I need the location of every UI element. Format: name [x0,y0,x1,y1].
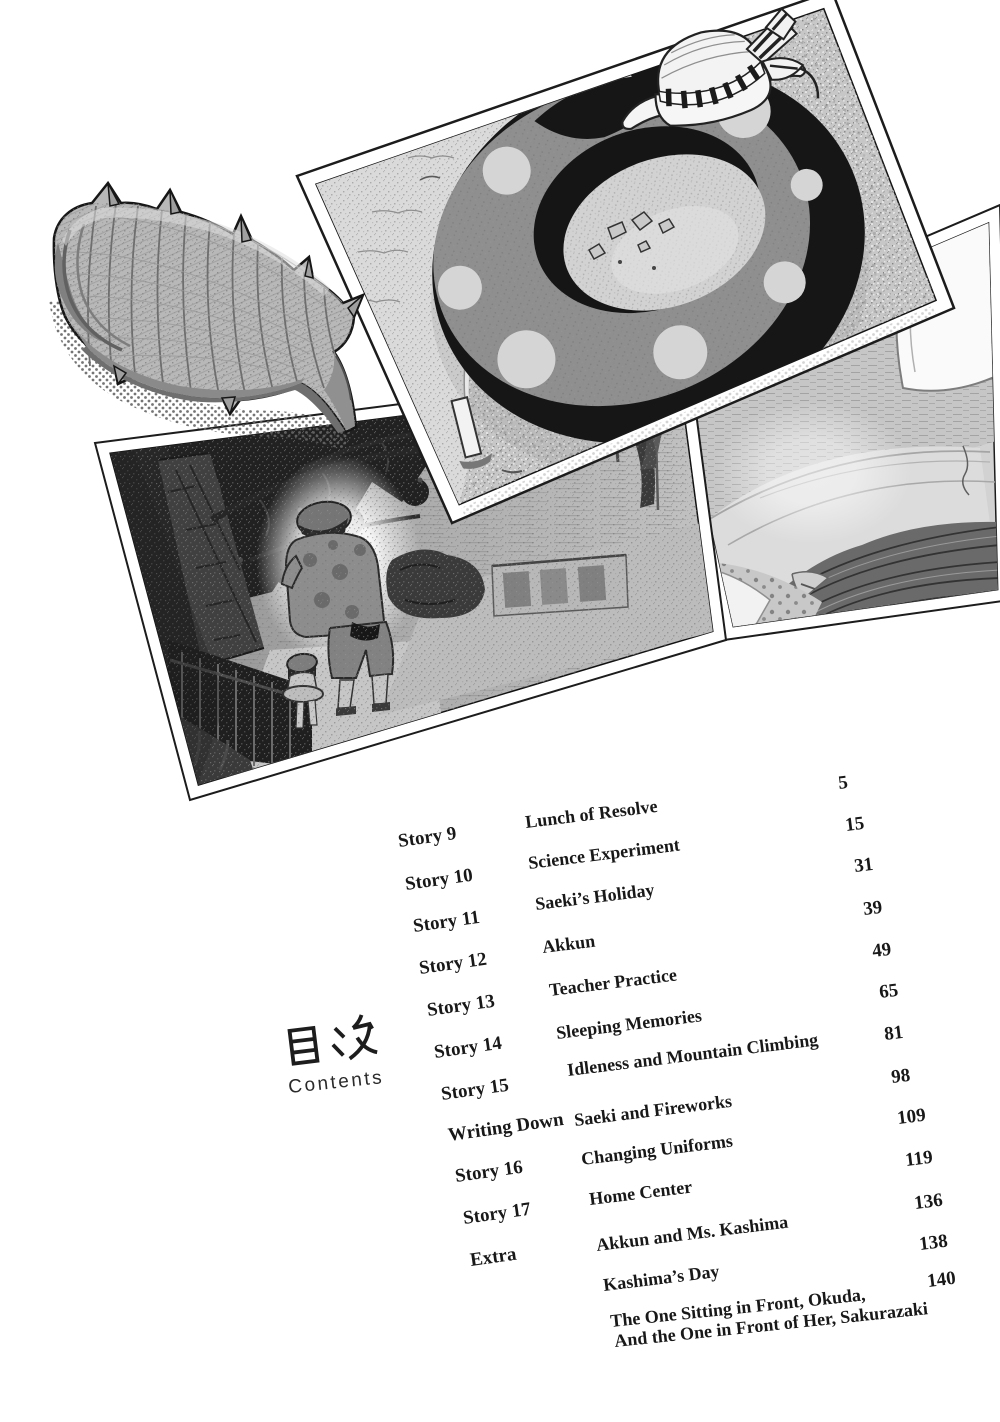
svg-text:98: 98 [890,1065,911,1088]
svg-text:136: 136 [913,1190,944,1214]
svg-text:31: 31 [853,854,874,877]
svg-text:119: 119 [904,1147,934,1171]
svg-text:109: 109 [896,1105,927,1129]
svg-text:49: 49 [871,939,892,962]
svg-text:81: 81 [883,1022,904,1045]
svg-text:140: 140 [926,1268,957,1292]
svg-text:65: 65 [878,980,899,1003]
svg-text:39: 39 [862,897,883,920]
svg-text:15: 15 [844,813,865,836]
svg-text:138: 138 [918,1231,949,1255]
